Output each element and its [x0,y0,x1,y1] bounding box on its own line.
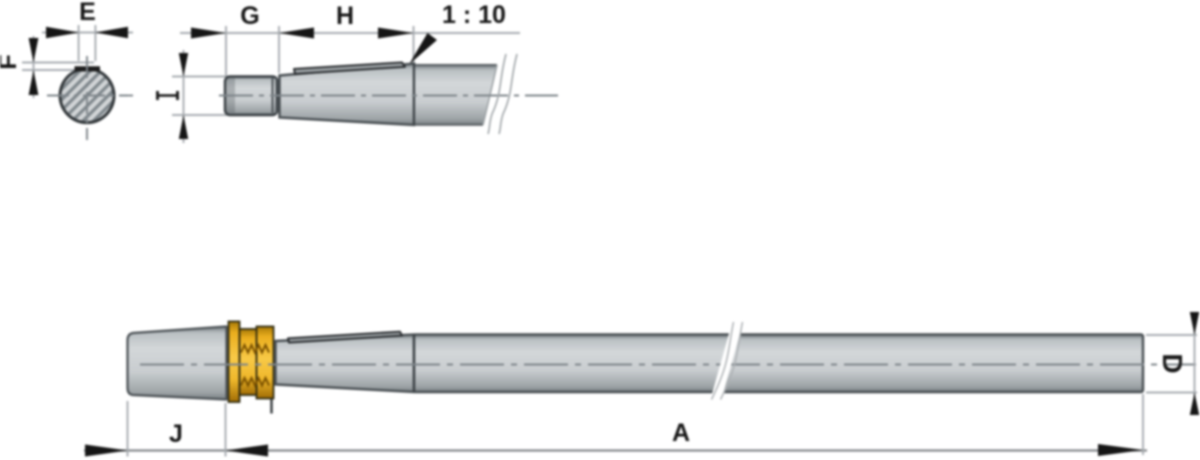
svg-text:J: J [169,420,183,448]
svg-text:D: D [1157,353,1188,373]
svg-text:1 : 10: 1 : 10 [442,1,506,29]
svg-text:A: A [672,419,690,447]
svg-text:H: H [336,2,354,30]
svg-text:F: F [0,54,22,69]
svg-text:G: G [240,2,259,30]
svg-text:E: E [79,0,96,26]
